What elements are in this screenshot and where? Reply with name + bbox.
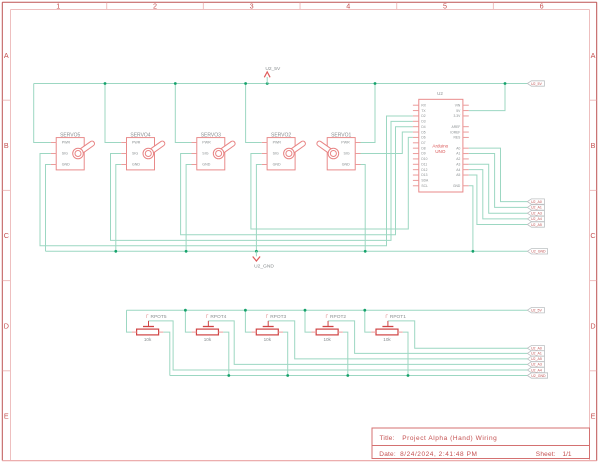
svg-text:A4: A4 bbox=[456, 168, 460, 172]
svg-text:3.3V: 3.3V bbox=[454, 114, 462, 118]
svg-text:RPOT1: RPOT1 bbox=[390, 314, 406, 320]
svg-text:SERVO2: SERVO2 bbox=[271, 132, 291, 138]
svg-text:4: 4 bbox=[346, 1, 350, 10]
svg-text:GND: GND bbox=[132, 163, 140, 167]
svg-text:U2_5V: U2_5V bbox=[265, 66, 281, 72]
svg-text:10k: 10k bbox=[204, 337, 212, 342]
svg-text:10k: 10k bbox=[264, 337, 272, 342]
svg-text:A3: A3 bbox=[456, 162, 460, 166]
svg-text:U2_GND: U2_GND bbox=[254, 263, 274, 269]
svg-text:B: B bbox=[591, 141, 596, 150]
svg-text:Title:: Title: bbox=[380, 435, 395, 442]
svg-text:PWR: PWR bbox=[62, 141, 71, 145]
svg-text:D9: D9 bbox=[421, 152, 425, 156]
svg-text:SIG: SIG bbox=[202, 152, 208, 156]
svg-text:10k: 10k bbox=[323, 337, 331, 342]
svg-text:RPOT4: RPOT4 bbox=[210, 314, 226, 320]
svg-text:U2_A4: U2_A4 bbox=[531, 217, 542, 221]
svg-text:U2_A1: U2_A1 bbox=[531, 352, 542, 356]
svg-text:Arduino: Arduino bbox=[432, 144, 448, 149]
svg-text:D7: D7 bbox=[421, 141, 425, 145]
svg-text:1: 1 bbox=[56, 1, 60, 10]
svg-text:GND: GND bbox=[273, 163, 281, 167]
svg-text:SERVO5: SERVO5 bbox=[60, 132, 80, 138]
svg-text:UNO: UNO bbox=[435, 149, 446, 154]
svg-text:RES: RES bbox=[454, 136, 462, 140]
svg-text:D5: D5 bbox=[421, 130, 425, 134]
svg-text:U2: U2 bbox=[437, 91, 443, 96]
svg-text:D12: D12 bbox=[421, 168, 427, 172]
svg-text:SIG: SIG bbox=[132, 152, 138, 156]
svg-text:A: A bbox=[4, 51, 9, 60]
svg-text:A2: A2 bbox=[456, 157, 460, 161]
svg-text:U2_5V: U2_5V bbox=[531, 82, 542, 86]
svg-text:A0: A0 bbox=[456, 146, 460, 150]
svg-text:10k: 10k bbox=[144, 337, 152, 342]
svg-text:A1: A1 bbox=[456, 152, 460, 156]
svg-text:IOREF: IOREF bbox=[450, 130, 460, 134]
svg-text:GND: GND bbox=[202, 163, 210, 167]
svg-text:D6: D6 bbox=[421, 136, 425, 140]
svg-text:PWR: PWR bbox=[132, 141, 141, 145]
svg-text:5: 5 bbox=[443, 1, 447, 10]
svg-text:PWR: PWR bbox=[341, 141, 350, 145]
svg-text:SCL: SCL bbox=[421, 184, 428, 188]
svg-text:AREF: AREF bbox=[452, 125, 461, 129]
svg-text:10k: 10k bbox=[383, 337, 391, 342]
svg-text:D: D bbox=[590, 321, 595, 330]
svg-text:3: 3 bbox=[250, 1, 254, 10]
svg-text:D10: D10 bbox=[421, 157, 427, 161]
svg-text:D3: D3 bbox=[421, 120, 425, 124]
svg-text:SIG: SIG bbox=[343, 152, 349, 156]
svg-text:SIG: SIG bbox=[273, 152, 279, 156]
svg-text:GND: GND bbox=[62, 163, 70, 167]
svg-text:GND: GND bbox=[453, 184, 461, 188]
svg-text:PWR: PWR bbox=[273, 141, 282, 145]
svg-text:SERVO3: SERVO3 bbox=[201, 132, 221, 138]
svg-text:Project Alpha (Hand) Wiring: Project Alpha (Hand) Wiring bbox=[402, 435, 497, 442]
svg-text:A: A bbox=[591, 51, 596, 60]
svg-text:U2_A3: U2_A3 bbox=[531, 363, 542, 367]
svg-text:RPOT3: RPOT3 bbox=[270, 314, 286, 320]
svg-text:B: B bbox=[4, 141, 9, 150]
svg-text:RPOT2: RPOT2 bbox=[330, 314, 346, 320]
svg-text:U2_A5: U2_A5 bbox=[531, 357, 542, 361]
svg-text:U2_A1: U2_A1 bbox=[531, 206, 542, 210]
svg-text:RPOT5: RPOT5 bbox=[151, 314, 167, 320]
svg-text:D: D bbox=[4, 321, 9, 330]
svg-text:U2_GND: U2_GND bbox=[531, 250, 546, 254]
svg-text:A5: A5 bbox=[456, 173, 460, 177]
svg-text:1/1: 1/1 bbox=[563, 451, 572, 458]
svg-text:D11: D11 bbox=[421, 162, 427, 166]
svg-text:6: 6 bbox=[540, 1, 544, 10]
svg-text:GND: GND bbox=[342, 163, 350, 167]
svg-text:PWR: PWR bbox=[202, 141, 211, 145]
svg-text:U2_A0: U2_A0 bbox=[531, 200, 542, 204]
svg-text:U2_A4: U2_A4 bbox=[531, 368, 542, 372]
svg-text:E: E bbox=[591, 412, 596, 421]
svg-text:SIG: SIG bbox=[62, 152, 68, 156]
svg-text:RX: RX bbox=[421, 103, 426, 107]
svg-text:D4: D4 bbox=[421, 125, 425, 129]
svg-text:8/24/2024, 2:41:48 PM: 8/24/2024, 2:41:48 PM bbox=[400, 451, 477, 458]
svg-text:D2: D2 bbox=[421, 114, 425, 118]
svg-text:E: E bbox=[4, 412, 9, 421]
svg-text:U2_A3: U2_A3 bbox=[531, 212, 542, 216]
svg-text:Sheet:: Sheet: bbox=[536, 451, 556, 458]
svg-text:D8: D8 bbox=[421, 146, 425, 150]
svg-text:U2_A5: U2_A5 bbox=[531, 223, 542, 227]
svg-text:U2_5V: U2_5V bbox=[531, 309, 542, 313]
svg-text:U2_GND: U2_GND bbox=[531, 374, 546, 378]
svg-text:VIN: VIN bbox=[455, 103, 461, 107]
svg-text:C: C bbox=[590, 231, 595, 240]
svg-text:SDA: SDA bbox=[421, 179, 429, 183]
svg-text:SERVO4: SERVO4 bbox=[130, 132, 150, 138]
svg-text:D13: D13 bbox=[421, 173, 427, 177]
svg-text:2: 2 bbox=[153, 1, 157, 10]
svg-text:C: C bbox=[4, 231, 9, 240]
svg-text:Date:: Date: bbox=[379, 451, 396, 458]
svg-text:U2_A0: U2_A0 bbox=[531, 347, 542, 351]
svg-text:SERVO1: SERVO1 bbox=[331, 132, 351, 138]
